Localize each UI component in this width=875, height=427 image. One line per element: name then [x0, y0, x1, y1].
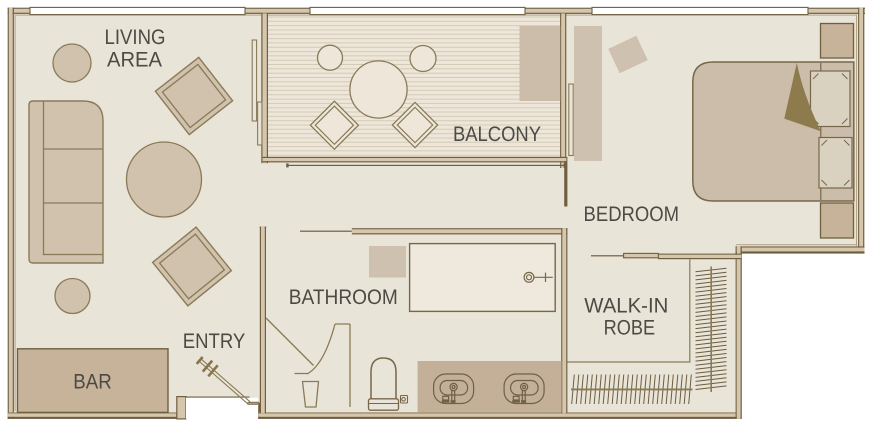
- svg-text:BEDROOM: BEDROOM: [584, 203, 680, 226]
- svg-text:WALK-IN: WALK-IN: [584, 295, 668, 318]
- svg-text:BAR: BAR: [73, 371, 112, 394]
- svg-text:BALCONY: BALCONY: [453, 123, 541, 146]
- svg-text:LIVING: LIVING: [105, 26, 166, 49]
- svg-text:AREA: AREA: [107, 49, 162, 72]
- svg-text:BATHROOM: BATHROOM: [289, 286, 398, 309]
- svg-text:ROBE: ROBE: [604, 317, 656, 340]
- svg-text:ENTRY: ENTRY: [183, 330, 246, 353]
